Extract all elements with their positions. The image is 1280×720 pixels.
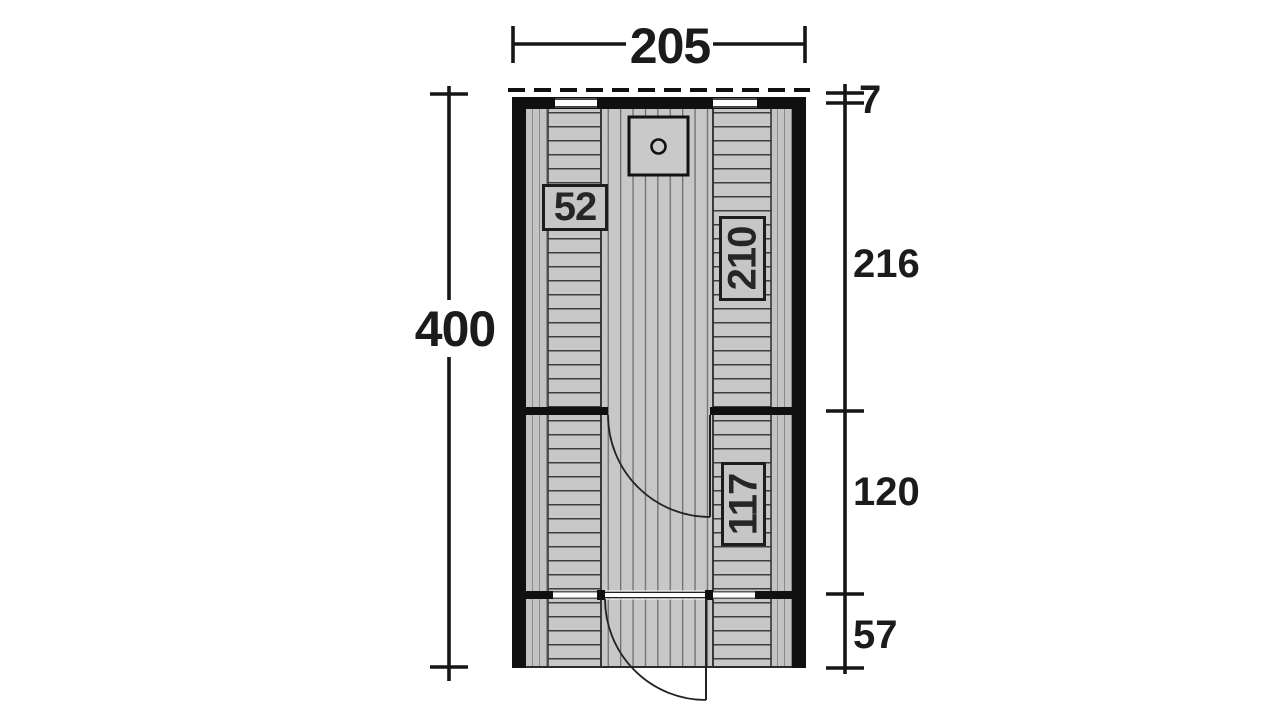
roof-overhang-dimension: 7 bbox=[859, 80, 881, 120]
overall-height-dimension: 400 bbox=[385, 304, 525, 354]
overall-width-dimension: 205 bbox=[600, 21, 740, 71]
front-wall bbox=[526, 590, 792, 600]
floor-surfaces bbox=[512, 97, 806, 668]
door-post bbox=[705, 590, 713, 600]
left-wall-lining-strip bbox=[526, 97, 548, 668]
plan-drawing bbox=[0, 0, 1280, 720]
bench-length-tag-text: 210 bbox=[720, 227, 765, 291]
stove-icon bbox=[629, 117, 688, 175]
middle-room-depth-dimension: 120 bbox=[853, 472, 920, 512]
right-wall-lining-strip bbox=[771, 97, 792, 668]
right-wall bbox=[792, 97, 806, 668]
bench-length-tag: 210 bbox=[719, 216, 766, 301]
rear-room-depth-dimension: 216 bbox=[853, 244, 920, 284]
left-wall bbox=[512, 97, 526, 668]
left-bench bbox=[548, 97, 601, 668]
bench-width-tag-text: 52 bbox=[554, 185, 597, 230]
door-post bbox=[597, 590, 605, 600]
middle-bench-length-tag-text: 117 bbox=[721, 473, 766, 535]
porch-depth-dimension: 57 bbox=[853, 615, 898, 655]
middle-bench-length-tag: 117 bbox=[721, 462, 766, 546]
floor-plan-canvas: 205 400 7 216 120 57 52 210 117 bbox=[0, 0, 1280, 720]
right-bench bbox=[713, 97, 771, 668]
bench-width-tag: 52 bbox=[542, 184, 608, 231]
center-floor-planks bbox=[601, 97, 713, 668]
